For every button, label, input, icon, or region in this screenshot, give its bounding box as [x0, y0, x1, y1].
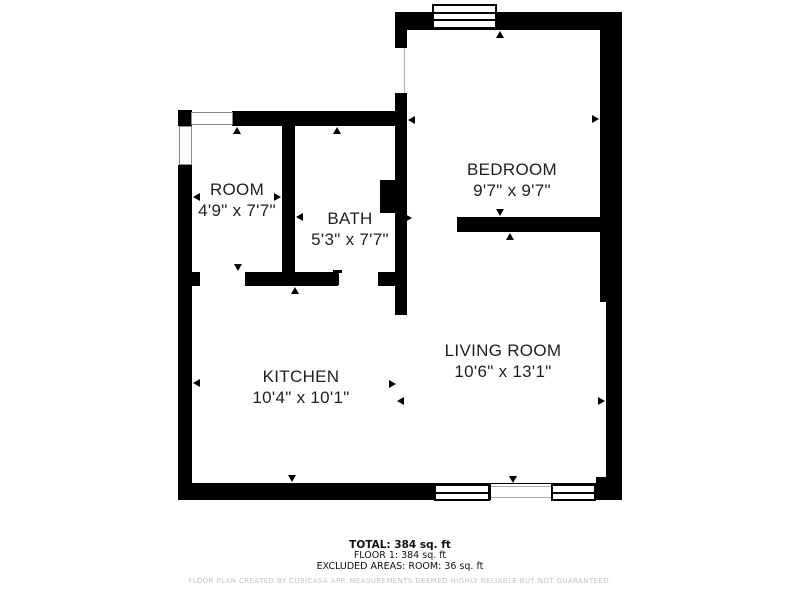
- floor-plan-canvas: BEDROOM9'7" x 9'7"ROOM4'9" x 7'7"BATH5'3…: [0, 0, 800, 600]
- wall-segment: [606, 302, 622, 500]
- dimension-arrow: [408, 116, 415, 124]
- excluded-areas-label: EXCLUDED AREAS: ROOM: 36 sq. ft: [0, 562, 800, 573]
- dimension-arrow: [234, 264, 242, 271]
- wall-segment: [336, 273, 339, 285]
- wall-segment: [395, 12, 407, 48]
- room-label: KITCHEN10'4" x 10'1": [191, 366, 411, 408]
- wall-segment: [232, 111, 407, 126]
- dimension-arrow: [496, 31, 504, 38]
- floor-area-label: FLOOR 1: 384 sq. ft: [0, 551, 800, 562]
- room-name: BATH: [240, 208, 460, 229]
- floor-plan: BEDROOM9'7" x 9'7"ROOM4'9" x 7'7"BATH5'3…: [0, 0, 800, 540]
- wall-segment: [178, 272, 200, 286]
- window-symbol: [551, 484, 596, 501]
- window-symbol: [191, 112, 233, 125]
- opening-line: [491, 497, 551, 498]
- room-dims: 9'7" x 9'7": [402, 180, 622, 201]
- wall-segment: [378, 272, 395, 286]
- window-pane-line: [553, 492, 594, 494]
- opening-line: [491, 486, 551, 487]
- room-name: LIVING ROOM: [393, 340, 613, 361]
- opening-line: [404, 48, 405, 93]
- room-label: BATH5'3" x 7'7": [240, 208, 460, 250]
- dimension-arrow: [333, 127, 341, 134]
- dimension-arrow: [506, 233, 514, 240]
- room-label: BEDROOM9'7" x 9'7": [402, 159, 622, 201]
- wall-segment: [395, 12, 622, 30]
- dimension-arrow: [598, 397, 605, 405]
- window-symbol: [432, 4, 497, 29]
- dimension-arrow: [233, 127, 241, 134]
- window-symbol: [434, 484, 490, 501]
- wall-segment: [457, 217, 600, 232]
- window-pane-line: [436, 492, 488, 494]
- summary-footer: TOTAL: 384 sq. ft FLOOR 1: 384 sq. ft EX…: [0, 539, 800, 585]
- window-symbol: [179, 126, 192, 165]
- room-dims: 10'4" x 10'1": [191, 387, 411, 408]
- dimension-arrow: [496, 209, 504, 216]
- window-pane-line: [434, 19, 495, 21]
- room-label: LIVING ROOM10'6" x 13'1": [393, 340, 613, 382]
- dimension-arrow: [291, 287, 299, 294]
- room-dims: 10'6" x 13'1": [393, 361, 613, 382]
- window-pane-line: [434, 12, 495, 14]
- wall-segment: [395, 93, 407, 315]
- room-name: ROOM: [127, 179, 347, 200]
- dimension-arrow: [592, 115, 599, 123]
- disclaimer-text: FLOOR PLAN CREATED BY CUBICASA APP. MEAS…: [0, 577, 800, 585]
- wall-segment: [245, 272, 338, 286]
- dimension-arrow: [509, 476, 517, 483]
- room-dims: 5'3" x 7'7": [240, 229, 460, 250]
- wall-segment: [600, 12, 622, 302]
- wall-segment: [178, 110, 192, 126]
- dimension-arrow: [288, 475, 296, 482]
- room-name: BEDROOM: [402, 159, 622, 180]
- room-name: KITCHEN: [191, 366, 411, 387]
